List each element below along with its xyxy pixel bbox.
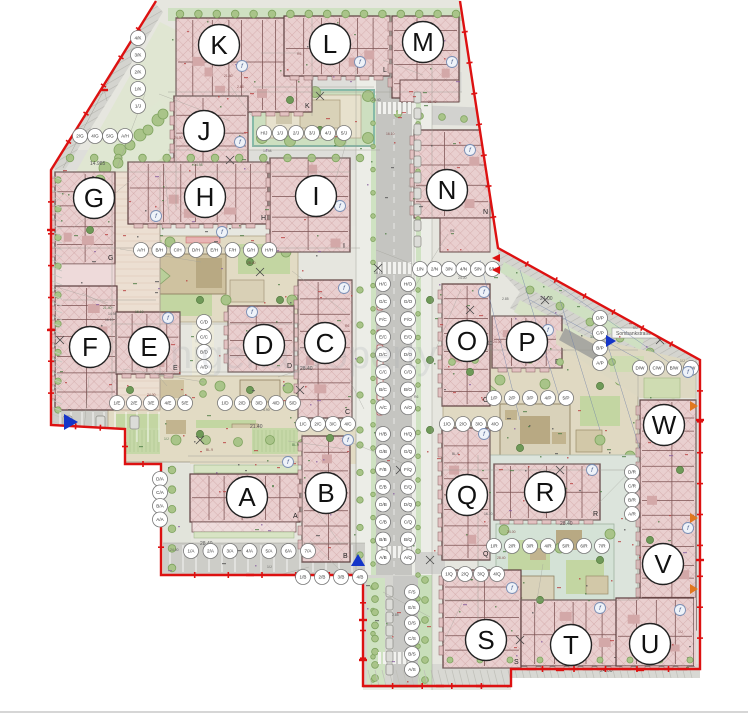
svg-text:21.40: 21.40: [250, 424, 263, 430]
svg-text:E/H: E/H: [210, 248, 218, 253]
svg-text:F/O: F/O: [404, 317, 412, 322]
svg-text:A/C: A/C: [379, 405, 387, 410]
svg-text:C/B: C/B: [379, 520, 387, 525]
svg-text:4/A: 4/A: [246, 549, 254, 554]
svg-text:3/E: 3/E: [148, 401, 155, 406]
svg-text:6/R: 6/R: [580, 544, 588, 549]
svg-text:1/O: 1/O: [443, 422, 451, 427]
svg-text:1/Q: 1/Q: [445, 572, 453, 577]
svg-text:D/A: D/A: [156, 477, 165, 482]
svg-text:L: L: [383, 67, 387, 74]
svg-text:D/H: D/H: [192, 248, 200, 253]
svg-text:A/S: A/S: [408, 667, 415, 672]
svg-text:I: I: [343, 243, 345, 250]
svg-text:16.10: 16.10: [386, 132, 395, 136]
svg-text:1/E: 1/E: [114, 401, 121, 406]
svg-text:1/J: 1/J: [164, 437, 169, 441]
svg-text:1/R: 1/R: [490, 544, 498, 549]
svg-text:14.98: 14.98: [194, 163, 203, 167]
svg-text:2/A: 2/A: [207, 549, 215, 554]
svg-text:2/E: 2/E: [131, 401, 138, 406]
svg-text:S: S: [477, 625, 494, 655]
svg-text:5/E: 5/E: [182, 401, 189, 406]
svg-text:3/R: 3/R: [526, 544, 534, 549]
svg-text:5/N: 5/N: [474, 267, 481, 272]
svg-text:1/K: 1/K: [135, 87, 143, 92]
svg-text:2/P: 2/P: [509, 396, 516, 401]
svg-text:4/N: 4/N: [460, 267, 467, 272]
svg-text:3/N: 3/N: [445, 267, 452, 272]
svg-text:1/J: 1/J: [680, 359, 685, 363]
svg-text:D/P: D/P: [596, 316, 604, 321]
svg-text:C: C: [316, 328, 335, 358]
svg-text:F/Q: F/Q: [404, 467, 412, 472]
svg-text:1/P: 1/P: [491, 396, 498, 401]
svg-text:W: W: [652, 410, 677, 440]
svg-text:16.10: 16.10: [135, 310, 144, 314]
svg-text:A/H: A/H: [137, 248, 145, 253]
svg-text:A/R: A/R: [628, 512, 636, 517]
svg-text:D: D: [255, 330, 274, 360]
svg-text:G/B: G/B: [379, 449, 387, 454]
svg-text:G: G: [108, 255, 113, 262]
svg-text:A/A: A/A: [156, 517, 164, 522]
svg-text:E: E: [140, 332, 157, 362]
svg-text:16.10: 16.10: [105, 318, 114, 322]
svg-text:N: N: [483, 209, 488, 216]
svg-text:E/S: E/S: [408, 605, 415, 610]
svg-text:A/Q: A/Q: [404, 555, 412, 560]
svg-text:2/R: 2/R: [508, 544, 516, 549]
svg-text:2/G: 2/G: [76, 134, 84, 139]
svg-text:4/D: 4/D: [272, 401, 280, 406]
svg-text:3/O: 3/O: [475, 422, 483, 427]
svg-text:2/C: 2/C: [314, 422, 322, 427]
svg-text:B/R: B/R: [628, 498, 636, 503]
svg-text:C/R: C/R: [628, 484, 637, 489]
svg-text:3/K: 3/K: [135, 53, 143, 58]
svg-text:2/N: 2/N: [431, 267, 438, 272]
svg-text:K: K: [210, 30, 228, 60]
svg-text:V: V: [654, 549, 672, 579]
svg-text:14.985: 14.985: [90, 161, 106, 167]
svg-text:T: T: [563, 630, 579, 660]
svg-text:7/R: 7/R: [598, 544, 606, 549]
svg-text:1/A: 1/A: [188, 549, 196, 554]
svg-text:BL.9: BL.9: [206, 448, 213, 452]
svg-text:24.00: 24.00: [507, 530, 516, 534]
svg-text:G/Q: G/Q: [404, 449, 413, 454]
svg-text:D/W: D/W: [636, 366, 646, 371]
svg-text:B: B: [343, 553, 348, 560]
svg-text:2/K: 2/K: [135, 70, 143, 75]
svg-text:C/S: C/S: [408, 636, 416, 641]
svg-text:1/N: 1/N: [416, 267, 423, 272]
svg-text:R: R: [536, 477, 555, 507]
svg-text:4/C: 4/C: [344, 422, 352, 427]
svg-text:5/J: 5/J: [341, 131, 347, 136]
svg-text:C/D: C/D: [200, 320, 209, 325]
svg-text:L: L: [323, 29, 337, 59]
svg-text:O: O: [457, 326, 477, 356]
svg-text:D/S: D/S: [408, 621, 416, 626]
svg-text:H: H: [261, 215, 266, 222]
svg-text:5/P: 5/P: [563, 396, 570, 401]
svg-text:3/B: 3/B: [338, 575, 345, 580]
svg-text:3/P: 3/P: [527, 396, 534, 401]
svg-text:28.40: 28.40: [497, 556, 506, 560]
svg-text:1/J: 1/J: [135, 104, 141, 109]
svg-text:S: S: [514, 659, 519, 666]
svg-text:16.10: 16.10: [374, 271, 383, 275]
svg-text:R: R: [593, 511, 598, 518]
svg-text:3/J: 3/J: [309, 131, 315, 136]
svg-text:5/A: 5/A: [266, 549, 274, 554]
svg-text:H/O: H/O: [404, 282, 413, 287]
svg-text:J: J: [198, 116, 211, 146]
svg-text:A/H: A/H: [121, 134, 129, 139]
svg-text:R6: R6: [297, 52, 301, 56]
svg-text:U: U: [641, 629, 660, 659]
svg-text:3/D: 3/D: [255, 401, 263, 406]
svg-text:2/J: 2/J: [293, 131, 299, 136]
svg-text:5/D: 5/D: [289, 401, 297, 406]
svg-text:A/P: A/P: [596, 361, 603, 366]
svg-text:G/O: G/O: [404, 299, 413, 304]
svg-text:C/H: C/H: [174, 248, 182, 253]
svg-text:B/Q: B/Q: [404, 537, 412, 542]
svg-text:21.40: 21.40: [103, 306, 112, 310]
svg-text:E/Q: E/Q: [404, 484, 412, 489]
svg-text:1/C: 1/C: [299, 422, 307, 427]
svg-text:4/J: 4/J: [325, 131, 331, 136]
svg-text:5/R: 5/R: [562, 544, 570, 549]
svg-text:B/A: B/A: [156, 504, 164, 509]
svg-text:Sombankstraße: Sombankstraße: [616, 331, 652, 337]
svg-text:24.00: 24.00: [174, 136, 183, 140]
svg-text:5/G: 5/G: [106, 134, 114, 139]
svg-text:1/J: 1/J: [267, 565, 272, 569]
svg-text:3/Q: 3/Q: [477, 572, 485, 577]
svg-text:4/O: 4/O: [491, 422, 499, 427]
svg-text:1/J: 1/J: [678, 630, 683, 634]
svg-text:2/O: 2/O: [459, 422, 467, 427]
svg-text:14.98: 14.98: [108, 312, 117, 316]
svg-text:4/E: 4/E: [165, 401, 172, 406]
svg-text:28.40: 28.40: [247, 261, 256, 265]
svg-text:C: C: [345, 409, 350, 416]
svg-text:1/D: 1/D: [221, 401, 229, 406]
svg-text:E/B: E/B: [379, 484, 386, 489]
svg-text:N: N: [438, 175, 457, 205]
svg-text:C/A: C/A: [156, 490, 165, 495]
svg-text:2.85: 2.85: [502, 297, 509, 301]
svg-text:7/A: 7/A: [305, 549, 313, 554]
svg-text:4/P: 4/P: [545, 396, 552, 401]
svg-text:B/W: B/W: [670, 366, 679, 371]
svg-text:2.85: 2.85: [392, 613, 399, 617]
svg-text:3/A: 3/A: [227, 549, 235, 554]
svg-text:4/Q: 4/Q: [493, 572, 501, 577]
svg-text:P: P: [518, 327, 535, 357]
svg-text:G/C: G/C: [379, 299, 388, 304]
svg-text:R6: R6: [450, 229, 454, 233]
svg-text:A/B: A/B: [379, 555, 386, 560]
svg-text:B/S: B/S: [408, 652, 415, 657]
svg-text:F: F: [82, 332, 98, 362]
svg-text:C/P: C/P: [596, 331, 604, 336]
svg-text:I: I: [312, 181, 319, 211]
svg-text:Q: Q: [483, 551, 489, 558]
svg-text:H: H: [196, 182, 215, 212]
svg-text:24.00: 24.00: [493, 340, 502, 344]
svg-text:H/B: H/B: [379, 432, 387, 437]
svg-text:24.00: 24.00: [170, 548, 179, 552]
svg-text:2/B: 2/B: [319, 575, 326, 580]
svg-text:4/B: 4/B: [357, 575, 364, 580]
svg-text:F/S: F/S: [408, 590, 415, 595]
svg-text:BL.9: BL.9: [292, 443, 299, 447]
svg-text:F/C: F/C: [379, 317, 387, 322]
svg-text:F/H: F/H: [229, 248, 236, 253]
svg-text:H/H: H/H: [265, 248, 273, 253]
svg-text:B/O: B/O: [404, 387, 412, 392]
svg-text:D/Q: D/Q: [404, 502, 413, 507]
svg-text:A: A: [293, 513, 298, 520]
svg-text:4/R: 4/R: [544, 544, 552, 549]
svg-text:21.40: 21.40: [428, 100, 437, 104]
svg-text:R6: R6: [414, 395, 418, 399]
svg-text:28.40: 28.40: [560, 521, 573, 527]
svg-text:B/B: B/B: [379, 537, 386, 542]
svg-text:C/Q: C/Q: [404, 520, 413, 525]
svg-text:C/W: C/W: [653, 366, 663, 371]
svg-text:D/B: D/B: [379, 502, 387, 507]
svg-text:G/H: G/H: [247, 248, 255, 253]
svg-text:24.00: 24.00: [540, 296, 553, 302]
svg-text:4/G: 4/G: [91, 134, 99, 139]
svg-text:B/C: B/C: [379, 387, 387, 392]
svg-text:M: M: [412, 27, 434, 57]
svg-text:1/J: 1/J: [633, 326, 638, 330]
svg-text:28.40: 28.40: [372, 98, 381, 102]
svg-text:2/Q: 2/Q: [461, 572, 469, 577]
svg-text:21.40: 21.40: [224, 74, 233, 78]
svg-text:R6: R6: [345, 324, 349, 328]
svg-text:1/J: 1/J: [277, 131, 283, 136]
svg-text:F/B: F/B: [379, 467, 386, 472]
svg-text:6/A: 6/A: [285, 549, 293, 554]
svg-text:4/K: 4/K: [135, 36, 143, 41]
svg-text:B/H: B/H: [155, 248, 163, 253]
svg-text:A: A: [238, 482, 256, 512]
svg-text:3/C: 3/C: [329, 422, 337, 427]
svg-text:1/B: 1/B: [300, 575, 307, 580]
svg-text:H/Q: H/Q: [404, 432, 413, 437]
svg-text:G: G: [84, 183, 104, 213]
svg-text:2/D: 2/D: [238, 401, 246, 406]
svg-text:2.85: 2.85: [237, 85, 244, 89]
svg-text:nigeriaproperty: nigeriaproperty: [170, 333, 437, 377]
svg-text:B: B: [317, 478, 334, 508]
svg-text:Q: Q: [457, 480, 477, 510]
svg-text:A/O: A/O: [404, 405, 412, 410]
svg-text:H/C: H/C: [379, 282, 388, 287]
svg-text:H/J: H/J: [261, 131, 268, 136]
svg-text:D/R: D/R: [628, 470, 637, 475]
svg-text:B/P: B/P: [596, 346, 603, 351]
svg-text:K: K: [305, 103, 310, 110]
svg-text:16.10: 16.10: [484, 512, 493, 516]
